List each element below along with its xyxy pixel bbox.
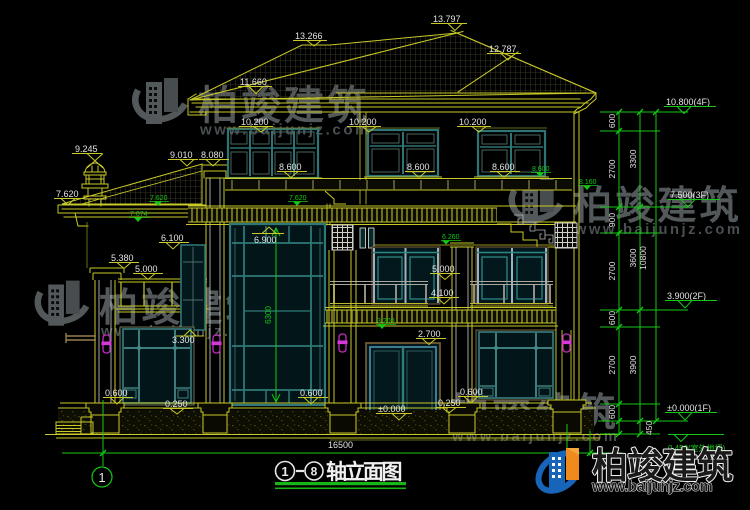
svg-text:6.100: 6.100 <box>161 233 184 243</box>
svg-text:8.600: 8.600 <box>279 162 302 172</box>
svg-text:轴立面图: 轴立面图 <box>326 460 401 484</box>
svg-text:3.200: 3.200 <box>377 318 395 325</box>
svg-text:0.250: 0.250 <box>438 398 461 408</box>
svg-text:16500: 16500 <box>328 440 353 450</box>
svg-text:10.800(4F): 10.800(4F) <box>666 97 710 107</box>
svg-text:7.500(3F): 7.500(3F) <box>670 190 709 200</box>
svg-text:2700: 2700 <box>607 355 617 374</box>
svg-text:11.660: 11.660 <box>240 77 267 87</box>
svg-text:6300: 6300 <box>264 306 273 324</box>
svg-text:12.787: 12.787 <box>489 44 517 54</box>
svg-text:8.160: 8.160 <box>579 179 597 186</box>
svg-text:13.797: 13.797 <box>433 14 461 24</box>
svg-text:0.600: 0.600 <box>300 388 323 398</box>
svg-text:0.250: 0.250 <box>165 399 188 409</box>
svg-text:7.620: 7.620 <box>289 195 307 202</box>
svg-text:±0.000(1F): ±0.000(1F) <box>667 403 711 413</box>
svg-text:0.600: 0.600 <box>105 388 128 398</box>
svg-text:3600: 3600 <box>628 248 638 267</box>
svg-text:13.266: 13.266 <box>295 31 323 41</box>
svg-text:10800: 10800 <box>638 246 648 270</box>
svg-text:3300: 3300 <box>628 149 638 168</box>
svg-text:7.620: 7.620 <box>150 195 168 202</box>
svg-text:8.600: 8.600 <box>532 166 550 173</box>
svg-text:900: 900 <box>607 213 617 227</box>
svg-text:600: 600 <box>607 311 617 325</box>
svg-text:0.600: 0.600 <box>460 387 483 397</box>
svg-text:4.100: 4.100 <box>431 288 454 298</box>
svg-text:2700: 2700 <box>607 159 617 178</box>
svg-text:8.600: 8.600 <box>492 162 515 172</box>
svg-text:www.baijunjz.com: www.baijunjz.com <box>591 479 712 495</box>
svg-text:2.700: 2.700 <box>418 329 441 339</box>
svg-text:10.200: 10.200 <box>459 117 487 127</box>
svg-text:8: 8 <box>311 465 318 479</box>
svg-text:450: 450 <box>644 421 654 435</box>
svg-text:6.900: 6.900 <box>254 235 277 245</box>
svg-text:10.200: 10.200 <box>349 117 377 127</box>
svg-text:9.010: 9.010 <box>170 150 193 160</box>
svg-text:5.000: 5.000 <box>135 264 158 274</box>
svg-text:5.000: 5.000 <box>432 264 455 274</box>
svg-text:8.600: 8.600 <box>407 162 430 172</box>
svg-text:7.074: 7.074 <box>130 211 148 218</box>
svg-text:3.900(2F): 3.900(2F) <box>667 291 706 301</box>
svg-text:5.380: 5.380 <box>111 253 134 263</box>
svg-text:10.200: 10.200 <box>241 117 269 127</box>
svg-text:600: 600 <box>607 405 617 419</box>
svg-text:7.620: 7.620 <box>56 189 79 199</box>
svg-text:9.245: 9.245 <box>75 144 98 154</box>
svg-text:3900: 3900 <box>628 355 638 374</box>
svg-text:±0.000: ±0.000 <box>378 404 405 414</box>
svg-text:2700: 2700 <box>607 261 617 280</box>
svg-text:1: 1 <box>98 470 105 485</box>
svg-text:1: 1 <box>281 464 288 479</box>
svg-text:3.300: 3.300 <box>172 335 195 345</box>
svg-text:8.080: 8.080 <box>201 150 224 160</box>
svg-text:600: 600 <box>607 114 617 128</box>
svg-text:6.260: 6.260 <box>442 234 460 241</box>
